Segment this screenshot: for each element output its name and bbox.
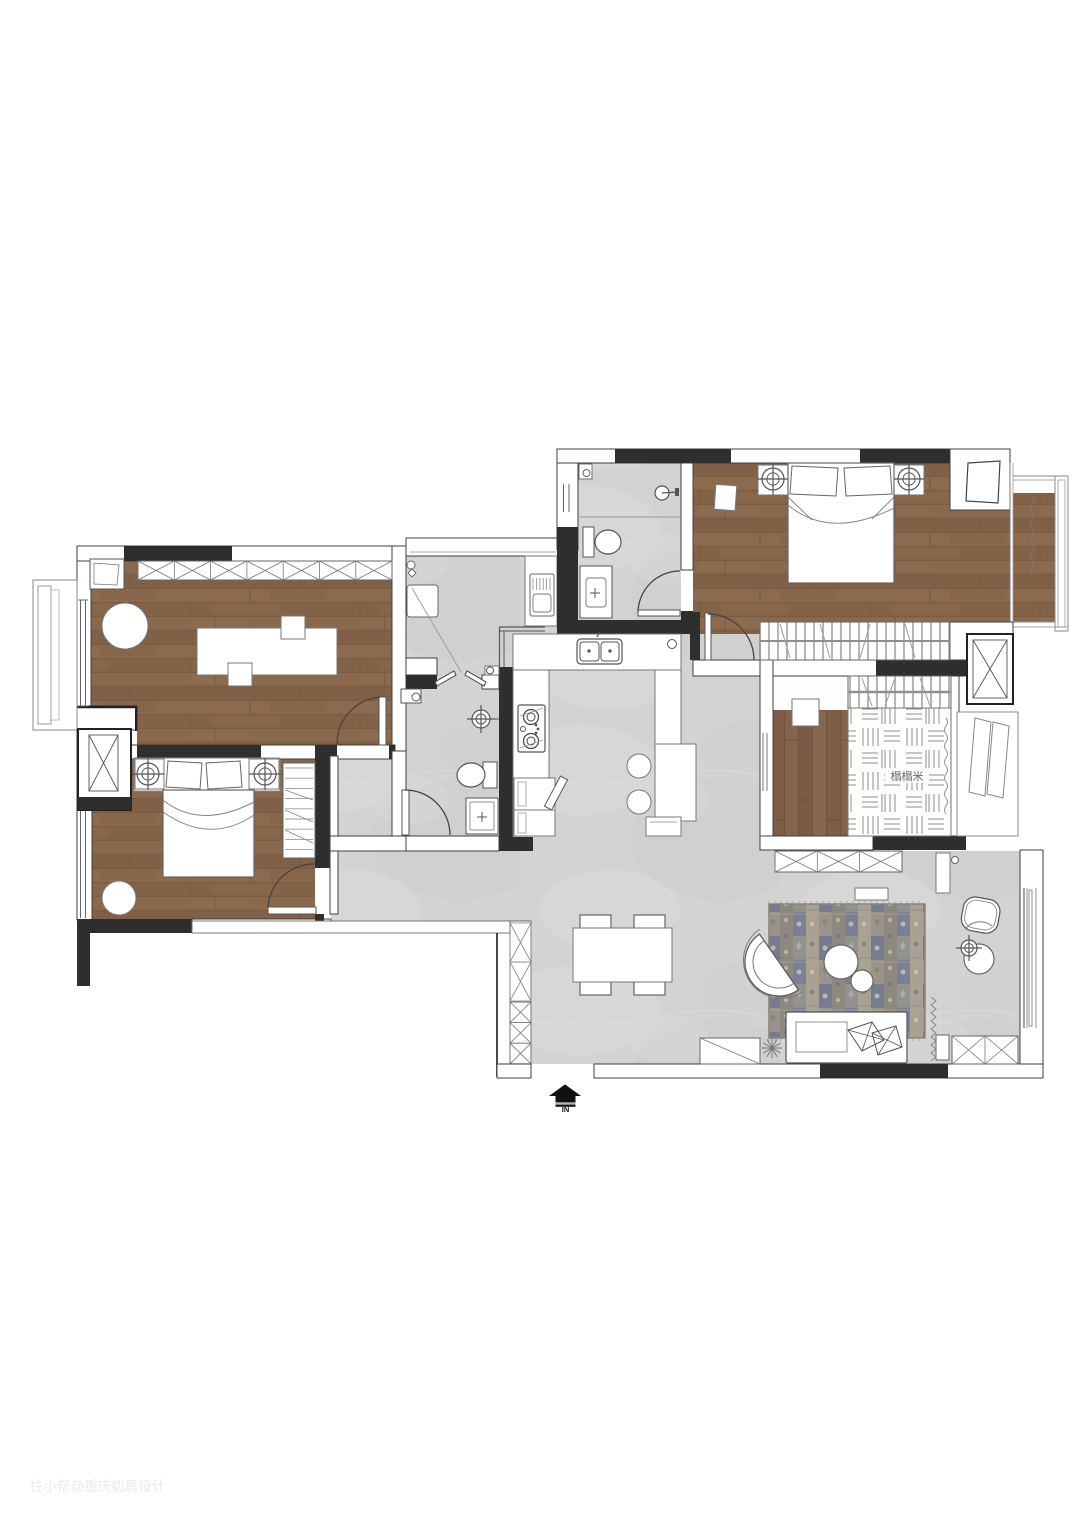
svg-text:住小帮@重庆初晨设计: 住小帮@重庆初晨设计 bbox=[30, 1478, 165, 1494]
svg-text:IN: IN bbox=[562, 1105, 570, 1114]
svg-text:榻榻米: 榻榻米 bbox=[891, 769, 924, 783]
